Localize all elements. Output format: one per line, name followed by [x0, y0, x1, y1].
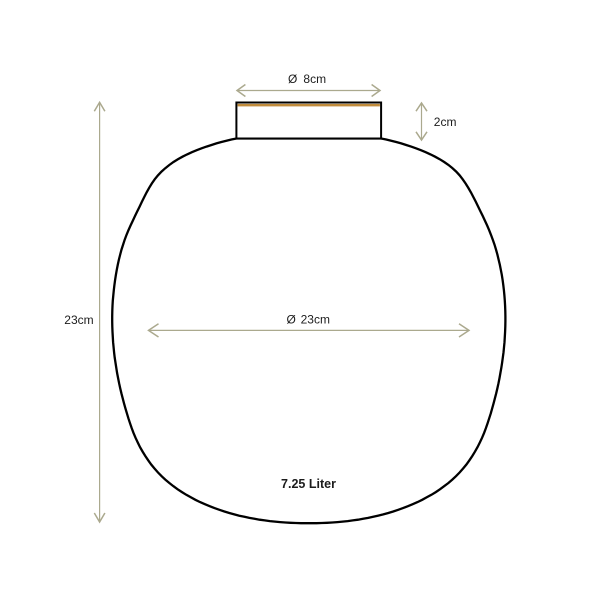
svg-text:2cm: 2cm	[434, 115, 457, 129]
svg-text:Ø: Ø	[288, 72, 297, 86]
svg-text:7.25 Liter: 7.25 Liter	[281, 477, 336, 491]
svg-text:Ø: Ø	[287, 313, 296, 327]
svg-text:23cm: 23cm	[64, 313, 93, 327]
svg-text:8cm: 8cm	[303, 72, 326, 86]
svg-text:23cm: 23cm	[301, 313, 330, 327]
